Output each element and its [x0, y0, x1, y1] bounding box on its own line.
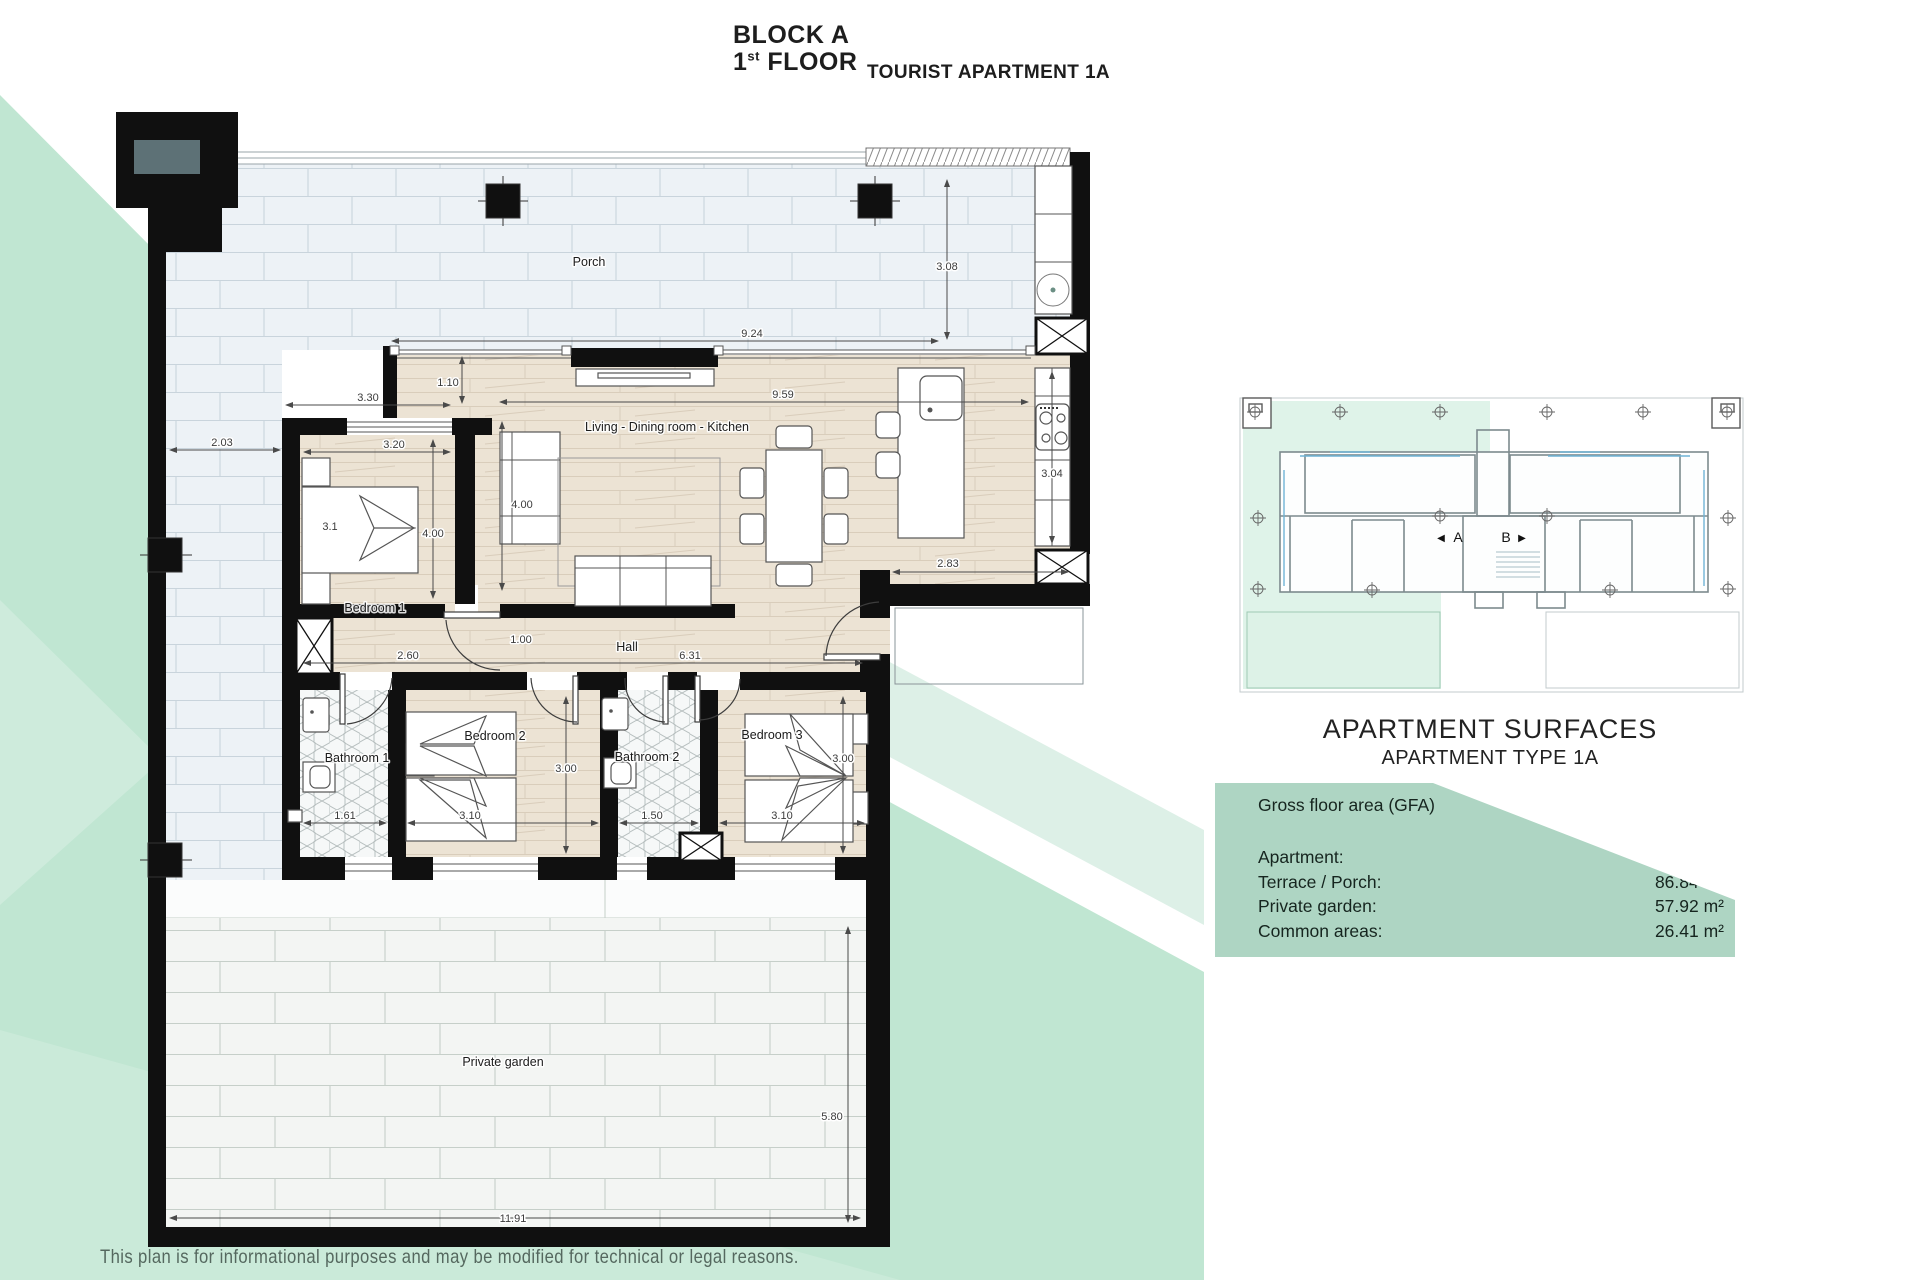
- label-hall: Hall: [616, 640, 638, 654]
- label-bathroom2: Bathroom 2: [615, 750, 680, 764]
- svg-text:4.00: 4.00: [422, 528, 443, 540]
- porch-fence: [238, 148, 1070, 166]
- row-label: Common areas:: [1258, 919, 1383, 944]
- building-overview-thumbnail: ◀ A B ▶: [1240, 398, 1743, 692]
- label-porch: Porch: [573, 255, 606, 269]
- unit-a-label: A: [1453, 529, 1463, 545]
- row-label: Apartment:: [1258, 845, 1344, 870]
- svg-text:3.10: 3.10: [771, 810, 792, 822]
- garden-floor: [166, 880, 866, 1227]
- outdoor-landing: [895, 608, 1083, 684]
- svg-text:3.04: 3.04: [1041, 468, 1062, 480]
- label-bathroom1: Bathroom 1: [325, 751, 390, 765]
- floor-plan-drawing: 2.03 3.30 1.10 9.24 3.08 9.59 4.00 3.20 …: [0, 0, 1920, 1280]
- svg-text:1.10: 1.10: [437, 377, 458, 389]
- label-garden: Private garden: [462, 1055, 543, 1069]
- disclaimer-text: This plan is for informational purposes …: [100, 1246, 799, 1268]
- label-living: Living - Dining room - Kitchen: [585, 420, 749, 434]
- surfaces-subheading: APARTMENT TYPE 1A: [1240, 747, 1740, 770]
- unit-b-label: B: [1501, 529, 1510, 545]
- svg-text:3.08: 3.08: [936, 261, 957, 273]
- unit-a-arrow: ◀: [1437, 533, 1445, 544]
- svg-text:3.30: 3.30: [357, 392, 378, 404]
- title-apartment: TOURIST APARTMENT 1A: [867, 62, 1110, 84]
- svg-text:9.59: 9.59: [772, 389, 793, 401]
- row-value: 57.92 m²: [1655, 894, 1724, 919]
- title-floor: 1st FLOOR: [733, 49, 857, 76]
- label-bedroom3: Bedroom 3: [741, 728, 802, 742]
- svg-text:2.03: 2.03: [211, 437, 232, 449]
- table-row: Common areas: 26.41 m²: [1258, 919, 1724, 944]
- table-row: Private garden: 57.92 m²: [1258, 894, 1724, 919]
- unit-b-arrow: ▶: [1518, 533, 1526, 544]
- row-label: Terrace / Porch:: [1258, 870, 1382, 895]
- svg-text:2.60: 2.60: [397, 650, 418, 662]
- svg-text:1.00: 1.00: [510, 634, 531, 646]
- svg-text:3.20: 3.20: [383, 439, 404, 451]
- svg-text:6.31: 6.31: [679, 650, 700, 662]
- svg-text:11.91: 11.91: [500, 1213, 527, 1225]
- svg-text:2.83: 2.83: [937, 558, 958, 570]
- surfaces-heading: APARTMENT SURFACES: [1240, 714, 1740, 745]
- label-bedroom2: Bedroom 2: [464, 729, 525, 743]
- drawing-title: BLOCK A 1st FLOOR: [733, 22, 857, 75]
- svg-text:3.00: 3.00: [555, 763, 576, 775]
- svg-text:4.00: 4.00: [511, 499, 532, 511]
- svg-text:5.80: 5.80: [821, 1111, 842, 1123]
- label-bedroom1: Bedroom 1: [344, 601, 405, 615]
- svg-text:1.61: 1.61: [334, 810, 355, 822]
- svg-text:3.00: 3.00: [832, 753, 853, 765]
- row-label: Private garden:: [1258, 894, 1377, 919]
- svg-text:9.24: 9.24: [741, 328, 762, 340]
- svg-text:3.10: 3.10: [459, 810, 480, 822]
- table-row: Terrace / Porch: 86.84 m²: [1258, 870, 1724, 895]
- svg-text:1.50: 1.50: [641, 810, 662, 822]
- floor-plan-page: { "title": { "block": "BLOCK A", "floor_…: [0, 0, 1920, 1280]
- row-value: 26.41 m²: [1655, 919, 1724, 944]
- pillar-skylight: [134, 140, 200, 174]
- title-block: BLOCK A: [733, 22, 857, 49]
- gfa-section-label: Gross floor area (GFA): [1258, 795, 1435, 816]
- svg-text:3.1: 3.1: [322, 521, 337, 533]
